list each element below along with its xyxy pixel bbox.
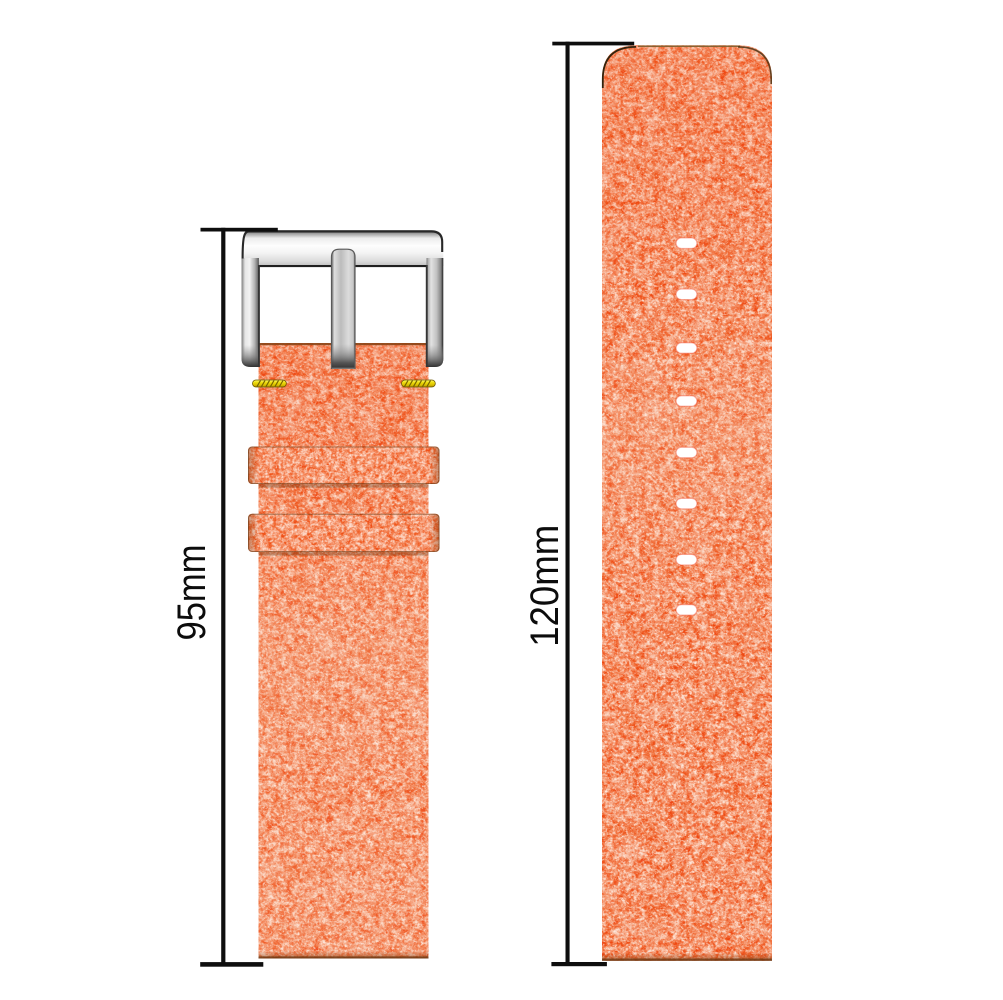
svg-text:95mm: 95mm (170, 545, 214, 641)
svg-text:120mm: 120mm (523, 525, 567, 647)
